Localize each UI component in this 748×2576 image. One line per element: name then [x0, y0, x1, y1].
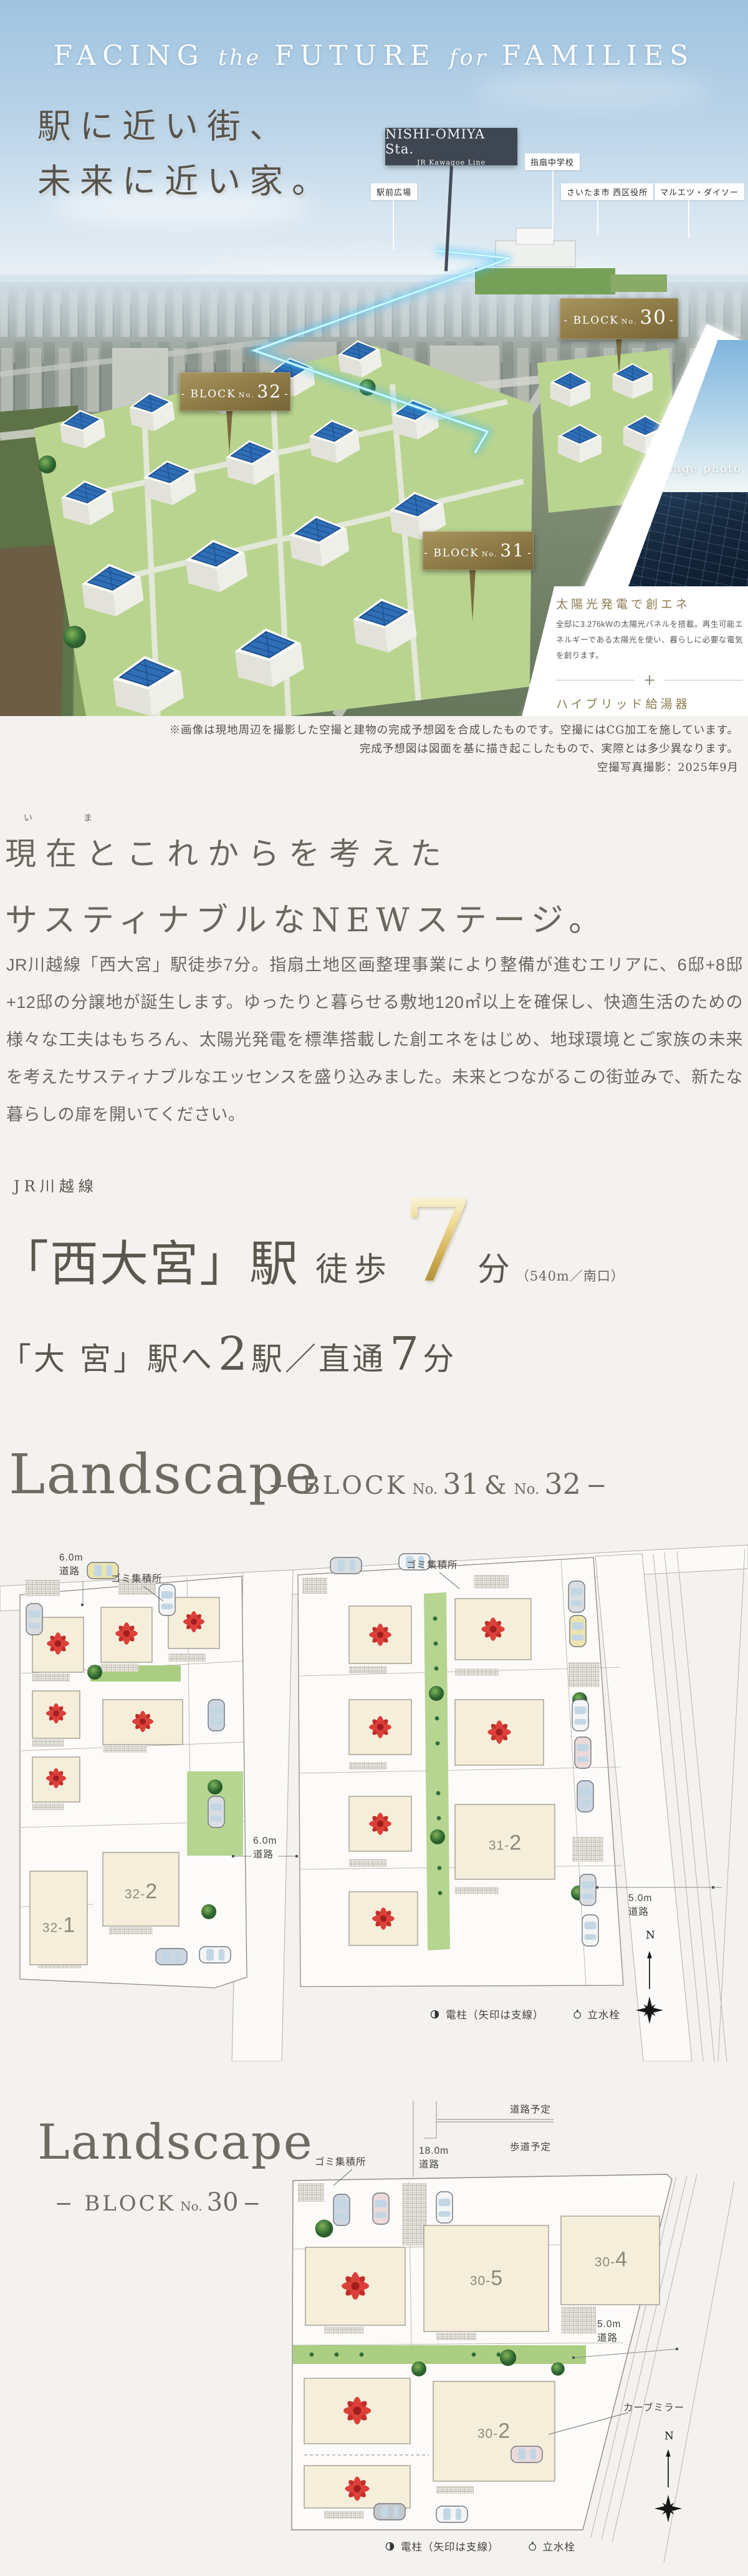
block-sign-30: - BLOCK No. 30 - [560, 298, 678, 339]
site-plan-30: 道路予定 歩道予定 18.0m 道路 ゴミ集積所 5.0m 道路 カーブミラー … [0, 2101, 748, 2576]
sign-num: 30 [640, 298, 666, 337]
map-label-plaza: 駅前広場 [371, 183, 417, 200]
title-word: for [446, 46, 492, 70]
sub-num: 31 [443, 1467, 479, 1501]
road-word: 道路 [597, 2331, 621, 2345]
road-label-5m: 5.0m 道路 [628, 1892, 652, 1920]
leader-line [597, 200, 598, 235]
water-tap-icon [528, 2542, 537, 2551]
feature-body-solar: 全邸に3.276kWの太陽光パネルを搭載。再生可能エネルギーである太陽光を使い、… [556, 617, 743, 664]
feature-title-heater: ハイブリッド給湯器 [556, 695, 743, 712]
road-width: 5.0m [628, 1892, 652, 1905]
access2-number: 2 [214, 1327, 251, 1381]
lot-pre: 30- [595, 2255, 615, 2270]
lot-num: 4 [615, 2248, 627, 2272]
feature-title-solar: 太陽光発電で創エネ [556, 595, 743, 612]
road-label-5m-30: 5.0m 道路 [597, 2318, 621, 2346]
block-sign-32: - BLOCK No. 32 - [180, 372, 290, 411]
map-label-store: マルエツ・ダイソー [654, 183, 744, 200]
lot-label-32-1: 32-1 [42, 1914, 75, 1938]
site-plan-31-32: 6.0m 道路 ゴミ集積所 ゴミ集積所 6.0m 道路 5.0m 道路 32-1… [0, 1513, 748, 2061]
curve-mirror-label: カーブミラー [623, 2401, 684, 2415]
hero-caption: ※画像は現地周辺を撮影した空撮と建物の完成予想図を合成したものです。空撮にはCG… [0, 721, 739, 777]
road-word: 道路 [253, 1848, 277, 1862]
site-plan-31-32-graphic [0, 1513, 748, 2061]
minutes-number: 7 [401, 1191, 474, 1291]
garbage-label-32: ゴミ集積所 [111, 1572, 163, 1586]
road-label-6m-top: 6.0m 道路 [59, 1551, 83, 1579]
leader-line [688, 200, 689, 238]
lot-pre: 30- [477, 2427, 498, 2441]
block-sign-31: - BLOCK No. 31 - [423, 531, 534, 570]
compass-n-label: N [664, 2430, 674, 2443]
catch-copy-line2: 未来に近い家。 [37, 153, 334, 203]
water-tap-icon [573, 2010, 582, 2019]
road-width: 5.0m [597, 2318, 621, 2331]
utility-pole-icon [430, 2010, 439, 2019]
road-word: 道路 [59, 1565, 83, 1579]
lot-label-30-2: 30-2 [477, 2419, 510, 2444]
lot-label-30-5: 30-5 [470, 2267, 502, 2291]
hero-english-title: FACING the FUTURE for FAMILIES [0, 40, 748, 72]
access2-text: 「大 宮」駅へ [0, 1334, 214, 1379]
minutes-unit: 分 [477, 1243, 510, 1290]
concept-heading-2: サスティナブルなNEWステージ。 [5, 894, 607, 941]
sign-stem [226, 410, 233, 454]
station-line: JR Kawagoe Line [417, 158, 486, 167]
legend-pole-label: 電柱（矢印は支線） [401, 2539, 499, 2554]
landscape1-subtitle: − BLOCK No. 31 & No. 32 − [268, 1467, 609, 1501]
access-row-1: 「西大宮」駅 徒歩 7 分 （540m／南口） [0, 1191, 625, 1295]
lot-label-31-2: 31-2 [489, 1831, 521, 1856]
access2-text: 分 [423, 1334, 456, 1379]
road-label-6m-mid: 6.0m 道路 [252, 1834, 278, 1862]
sign-stem [469, 569, 476, 622]
garbage-label-31: ゴミ集積所 [406, 1559, 458, 1572]
access2-number: 7 [386, 1327, 423, 1381]
planned-sidewalk-label: 歩道予定 [510, 2141, 551, 2154]
road-word: 道路 [628, 1905, 652, 1919]
road-word: 道路 [419, 2158, 449, 2172]
walk-label: 徒歩 [315, 1243, 393, 1290]
concept-heading-1: 現在とこれからを考えた [5, 829, 451, 874]
lot-num: 2 [145, 1880, 157, 1904]
garbage-label-30: ゴミ集積所 [315, 2156, 367, 2169]
sign-text: - [669, 301, 674, 340]
lot-pre: 30- [470, 2274, 491, 2288]
title-word: FUTURE [274, 40, 436, 72]
sub-text: & [484, 1471, 509, 1500]
lot-num: 2 [498, 2419, 510, 2443]
legend-tap-label: 立水栓 [543, 2539, 576, 2554]
road-label-18m: 18.0m 道路 [419, 2144, 449, 2172]
leader-line [552, 170, 554, 240]
sign-text: - BLOCK [181, 375, 236, 414]
plan1-legend: 電柱（矢印は支線） 立水栓 [430, 2007, 620, 2022]
sub-text: − BLOCK [268, 1471, 407, 1500]
lot-label-30-4: 30-4 [595, 2248, 627, 2272]
title-word: the [214, 46, 265, 70]
catch-copy-line1: 駅に近い街、 [37, 99, 292, 148]
legend-tap-label: 立水栓 [588, 2007, 621, 2022]
plan2-legend: 電柱（矢印は支線） 立水栓 [385, 2539, 575, 2554]
lot-pre: 32- [42, 1921, 63, 1935]
station-sign: NISHI-OMIYA Sta. JR Kawagoe Line [385, 128, 517, 165]
caption-line2: 完成予想図は図面を基に描き起こしたもので、実際とは多少異なります。 [0, 740, 739, 758]
site-plan-30-graphic [0, 2101, 748, 2576]
sign-num: 31 [500, 531, 525, 570]
caption-line3: 空撮写真撮影：2025年9月 [0, 758, 739, 777]
road-width: 18.0m [419, 2144, 449, 2158]
sign-text: - [284, 375, 289, 414]
sub-no: No. [412, 1481, 438, 1498]
feature-divider: + [556, 671, 743, 689]
concept-body: JR川越線「西大宮」駅徒歩7分。指扇土地区画整理事業により整備が進むエリアに、6… [6, 946, 743, 1133]
furigana: い ま [24, 811, 113, 824]
sign-text: - BLOCK [563, 301, 619, 340]
lot-pre: 31- [489, 1839, 509, 1853]
access-row-2: 「大 宮」駅へ 2 駅／直通 7 分 [0, 1327, 456, 1381]
access2-text: 駅／直通 [251, 1334, 386, 1379]
features-panel: 太陽光発電で創エネ 全邸に3.276kWの太陽光パネルを搭載。再生可能エネルギー… [517, 586, 748, 716]
title-word: FAMILIES [502, 40, 695, 72]
plus-icon: + [643, 671, 656, 689]
page: FACING the FUTURE for FAMILIES 駅に近い街、 未来… [0, 0, 748, 2576]
sign-text: - [527, 534, 532, 573]
distance-note: （540m／南口） [516, 1266, 625, 1285]
sign-stem [616, 338, 622, 374]
lot-num: 5 [491, 2267, 502, 2290]
lot-pre: 32- [125, 1887, 145, 1902]
leader-line [393, 200, 394, 249]
sign-text: - BLOCK [424, 534, 479, 573]
station-name-text: 「西大宮」駅 [0, 1225, 299, 1295]
lot-num: 1 [63, 1914, 75, 1937]
utility-pole-icon [385, 2542, 395, 2551]
road-width: 6.0m [253, 1834, 277, 1848]
planned-road-label: 道路予定 [510, 2103, 551, 2117]
sub-text: − [586, 1471, 610, 1500]
road-width: 6.0m [59, 1551, 83, 1565]
station-name: NISHI-OMIYA Sta. [385, 127, 517, 157]
caption-line1: ※画像は現地周辺を撮影した空撮と建物の完成予想図を合成したものです。空撮にはCG… [0, 721, 739, 740]
sign-num: 32 [257, 372, 282, 411]
legend-pole-label: 電柱（矢印は支線） [446, 2007, 544, 2022]
hero-section: FACING the FUTURE for FAMILIES 駅に近い街、 未来… [0, 0, 748, 716]
lot-num: 2 [509, 1831, 521, 1855]
sign-no: No. [239, 376, 255, 415]
map-label-ward-office: さいたま市 西区役所 [561, 183, 653, 200]
sign-no: No. [482, 535, 498, 574]
lot-label-32-2: 32-2 [125, 1880, 157, 1904]
sub-no: No. [514, 1481, 540, 1498]
compass-n-label: N [646, 1929, 655, 1942]
sign-no: No. [621, 303, 638, 341]
sub-num: 32 [544, 1467, 581, 1501]
map-label-school: 指扇中学校 [525, 153, 580, 170]
title-word: FACING [54, 40, 205, 72]
